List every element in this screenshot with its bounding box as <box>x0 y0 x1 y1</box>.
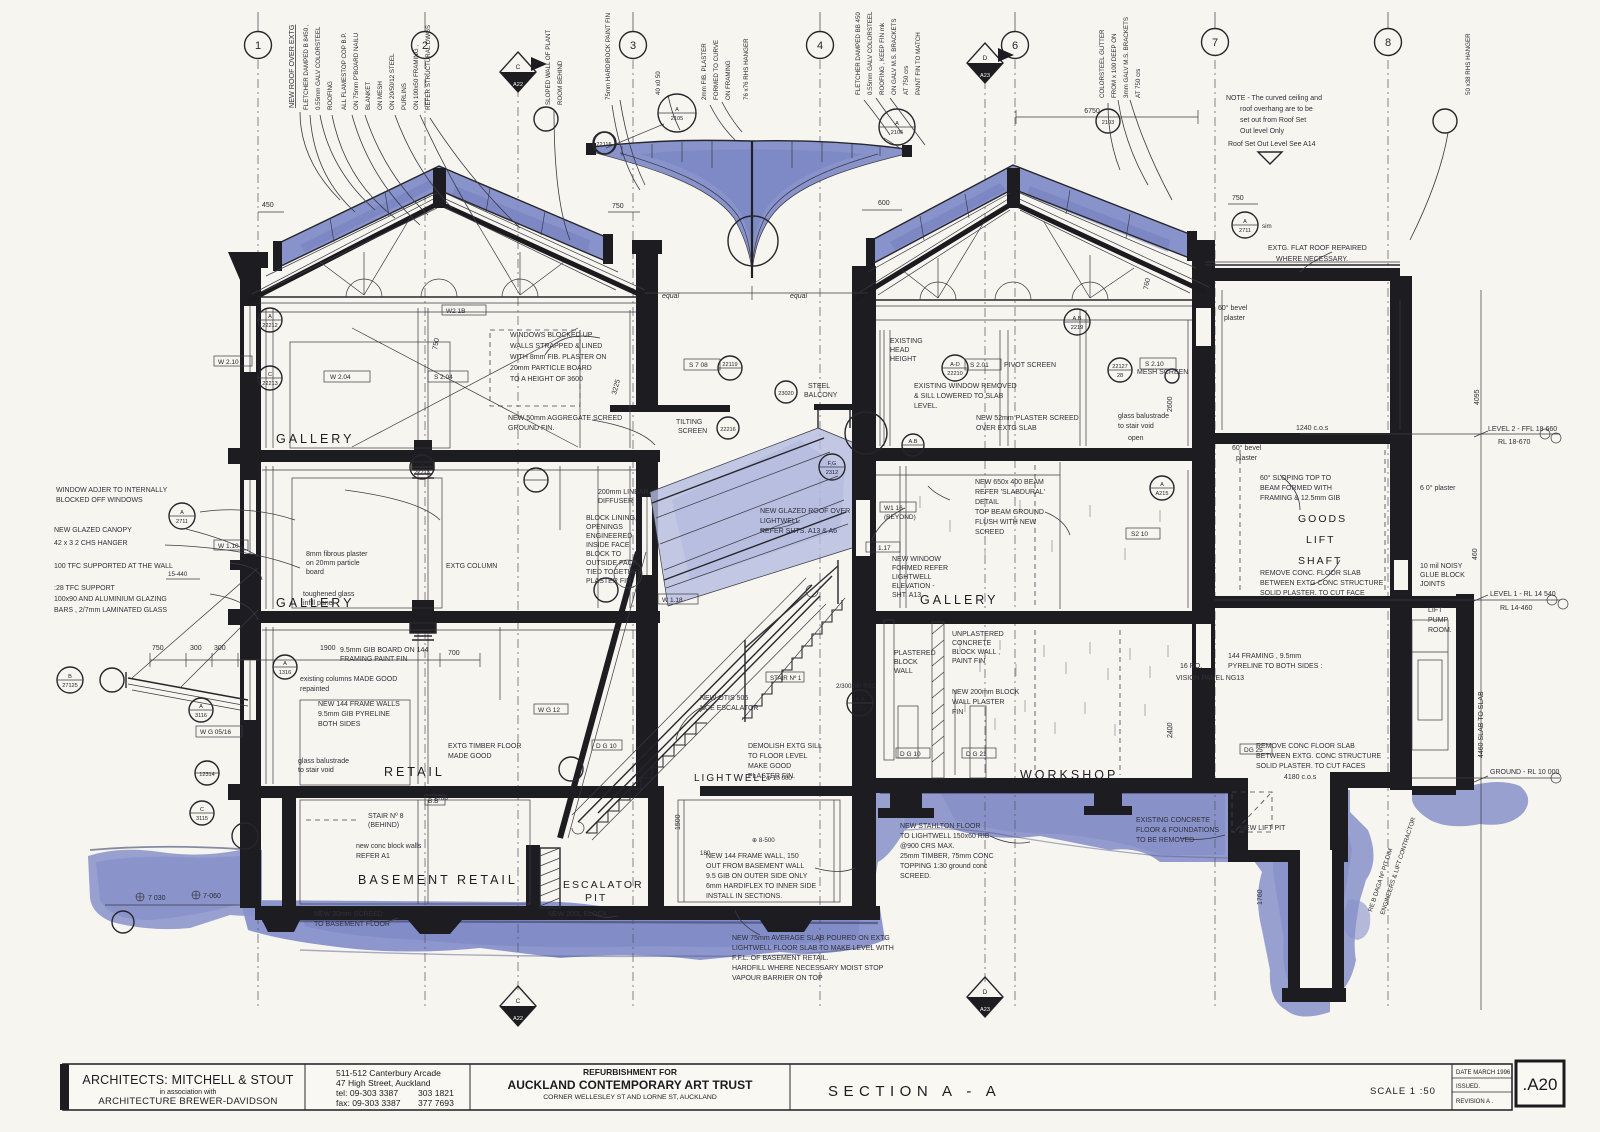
svg-text:INSIDE FACE: INSIDE FACE <box>586 542 630 549</box>
svg-text:ALL FLAMESTOP COP B.P.: ALL FLAMESTOP COP B.P. <box>341 32 348 110</box>
svg-text:WALL PLASTER: WALL PLASTER <box>952 699 1004 706</box>
svg-text:A: A <box>895 121 899 127</box>
svg-text:REFER STRUCTURAL DWGS: REFER STRUCTURAL DWGS <box>425 25 432 110</box>
svg-text:SECTION A - A: SECTION A - A <box>828 1083 1001 1100</box>
svg-text:3mm GALV M.S. BRACKETS: 3mm GALV M.S. BRACKETS <box>1123 17 1130 98</box>
svg-text:60° bevel: 60° bevel <box>1232 444 1262 452</box>
svg-text:W G 12: W G 12 <box>538 707 560 714</box>
svg-text:FLUSH WITH NEW: FLUSH WITH NEW <box>975 519 1036 526</box>
svg-text:22210: 22210 <box>947 371 963 377</box>
svg-text:1: 1 <box>255 40 261 52</box>
svg-text:1500: 1500 <box>675 814 682 830</box>
svg-text:7-060: 7-060 <box>203 893 221 900</box>
svg-text:LEVEL 1 - RL 14 540: LEVEL 1 - RL 14 540 <box>1490 591 1556 598</box>
svg-text:SCREED: SCREED <box>975 529 1004 536</box>
svg-text:STAIR Nº 1: STAIR Nº 1 <box>770 675 802 682</box>
svg-text:REVISION A .: REVISION A . <box>1456 1099 1493 1105</box>
svg-text:22216: 22216 <box>720 427 736 433</box>
svg-text:PLASTERED: PLASTERED <box>894 650 936 657</box>
svg-text:TOP BEAM GROUND: TOP BEAM GROUND <box>975 509 1044 516</box>
svg-text:22213: 22213 <box>414 470 430 476</box>
svg-text:S 2.10: S 2.10 <box>1145 361 1164 368</box>
svg-text:board: board <box>306 569 324 576</box>
svg-text:FLOOR & FOUNDATIONS: FLOOR & FOUNDATIONS <box>1136 827 1219 834</box>
svg-text:SCALE 1 :50: SCALE 1 :50 <box>1370 1086 1436 1097</box>
svg-text:A23: A23 <box>980 73 990 79</box>
svg-text:S 2.01: S 2.01 <box>970 362 989 369</box>
svg-text:equal: equal <box>662 293 680 300</box>
svg-text:1316: 1316 <box>279 670 291 676</box>
svg-text:on 20mm particle: on 20mm particle <box>306 560 360 567</box>
svg-text:W G 05/16: W G 05/16 <box>200 729 231 736</box>
svg-text:SLOPED WALL OF PLANT: SLOPED WALL OF PLANT <box>545 30 552 105</box>
svg-text:D G 21: D G 21 <box>966 751 987 758</box>
svg-text:8mm fibrous plaster: 8mm fibrous plaster <box>306 551 368 558</box>
svg-text:200mm LINEAR: 200mm LINEAR <box>598 489 649 496</box>
svg-text:S2 10: S2 10 <box>1131 531 1148 538</box>
svg-text:FROM x 100 DEEP ON: FROM x 100 DEEP ON <box>1111 33 1118 98</box>
svg-text:450: 450 <box>262 202 274 209</box>
svg-text:roof overhang are to be: roof overhang are to be <box>1240 106 1313 113</box>
svg-text:TOPPING 1:30 ground conc: TOPPING 1:30 ground conc <box>900 863 988 870</box>
svg-text:ROOM.: ROOM. <box>1428 627 1452 634</box>
svg-text:RETAIL: RETAIL <box>384 765 445 779</box>
svg-text:A23: A23 <box>980 1007 990 1013</box>
svg-text:W 1.17: W 1.17 <box>870 545 891 552</box>
svg-text:glass balustrade: glass balustrade <box>298 758 349 765</box>
svg-text:W 1.10: W 1.10 <box>218 543 239 550</box>
svg-text:RL 14-460: RL 14-460 <box>1500 605 1533 612</box>
svg-text:D G 10: D G 10 <box>596 743 617 750</box>
svg-text:SOLID PLASTER. TO CUT FACES: SOLID PLASTER. TO CUT FACES <box>1256 763 1366 770</box>
svg-text:12314: 12314 <box>199 772 215 778</box>
svg-text:MESH SCREEN: MESH SCREEN <box>1137 369 1188 376</box>
svg-text:AUCKLAND CONTEMPORARY ART TRUS: AUCKLAND CONTEMPORARY ART TRUST <box>508 1078 754 1092</box>
svg-text:& SILL LOWERED TO SLAB: & SILL LOWERED TO SLAB <box>914 393 1004 400</box>
svg-text:1760: 1760 <box>1257 889 1264 905</box>
svg-text:OVER EXTG SLAB: OVER EXTG SLAB <box>976 425 1037 432</box>
svg-text:BLOCK TO: BLOCK TO <box>586 551 622 558</box>
svg-text:TIED TOGETHER: TIED TOGETHER <box>586 569 643 576</box>
svg-text:EXTG TIMBER FLOOR: EXTG TIMBER FLOOR <box>448 743 521 750</box>
svg-text:C: C <box>420 461 424 467</box>
svg-text:6 0° plaster: 6 0° plaster <box>1420 484 1456 492</box>
svg-text:plaster: plaster <box>1236 455 1258 462</box>
svg-text:A22: A22 <box>513 82 523 88</box>
svg-text:2106: 2106 <box>891 130 903 136</box>
svg-text:A: A <box>1243 219 1247 225</box>
svg-text:NCE ESCALATOR: NCE ESCALATOR <box>700 705 758 712</box>
svg-text:2786: 2786 <box>434 795 448 802</box>
svg-text:600: 600 <box>878 200 890 207</box>
svg-text:47 High Street, Auckland: 47 High Street, Auckland <box>336 1078 431 1088</box>
svg-text:6mm HARDIFLEX TO INNER SIDE: 6mm HARDIFLEX TO INNER SIDE <box>706 883 817 890</box>
svg-text:WHERE NECESSARY.: WHERE NECESSARY. <box>1276 256 1348 263</box>
svg-text:FIN: FIN <box>952 709 963 716</box>
svg-text:2209: 2209 <box>907 448 919 454</box>
svg-text:LIFT: LIFT <box>1428 607 1443 614</box>
svg-text:EXISTING: EXISTING <box>890 338 923 345</box>
svg-text:511-512 Canterbury Arcade: 511-512 Canterbury Arcade <box>336 1068 441 1078</box>
svg-text:F,G: F,G <box>828 461 837 467</box>
svg-text:ROOM BEHIND: ROOM BEHIND <box>557 60 564 105</box>
svg-text:NEW WINDOW: NEW WINDOW <box>892 556 941 563</box>
svg-text:144 FRAMING , 9.5mm: 144 FRAMING , 9.5mm <box>1228 653 1301 660</box>
svg-text:40 x0 50: 40 x0 50 <box>655 71 662 95</box>
svg-text:7 030: 7 030 <box>148 895 166 902</box>
svg-text:D: D <box>983 55 988 62</box>
svg-text:NEW 50mm AGGREGATE SCREED: NEW 50mm AGGREGATE SCREED <box>508 415 622 422</box>
svg-text:75mm HARDIROCK PAINT FIN: 75mm HARDIROCK PAINT FIN <box>605 13 612 100</box>
svg-text:20mm PARTICLE BOARD: 20mm PARTICLE BOARD <box>510 365 592 372</box>
svg-text:2/300x90 RSC: 2/300x90 RSC <box>836 683 877 690</box>
svg-text:A: A <box>675 107 679 113</box>
svg-text:SHAFT: SHAFT <box>1298 555 1342 567</box>
svg-text:PAINT FIN TO MATCH: PAINT FIN TO MATCH <box>915 32 922 95</box>
svg-text:700: 700 <box>448 650 460 657</box>
svg-text:ON GALV M.S. BRACKETS: ON GALV M.S. BRACKETS <box>891 18 898 95</box>
svg-text:AT 750 crs: AT 750 crs <box>903 66 910 95</box>
svg-text:2711: 2711 <box>176 519 188 525</box>
svg-text:ISSUED.: ISSUED. <box>1456 1084 1480 1090</box>
svg-text:ON MESH: ON MESH <box>377 81 384 110</box>
svg-text:WITH 8mm FIB. PLASTER ON: WITH 8mm FIB. PLASTER ON <box>510 354 606 361</box>
svg-text:2711: 2711 <box>1239 228 1251 234</box>
svg-text:LEVEL.: LEVEL. <box>914 403 938 410</box>
svg-text:REMOVE CONC. FLOOR SLAB: REMOVE CONC. FLOOR SLAB <box>1260 570 1361 577</box>
svg-text:50 x38 RHS HANGER: 50 x38 RHS HANGER <box>1465 33 1472 95</box>
svg-text:TO FLOOR LEVEL: TO FLOOR LEVEL <box>748 753 807 760</box>
svg-text:infill panel: infill panel <box>303 600 335 607</box>
svg-text:ROOFING , KEEP FIN mk: ROOFING , KEEP FIN mk <box>879 22 886 95</box>
svg-text:REMOVE CONC FLOOR SLAB: REMOVE CONC FLOOR SLAB <box>1256 743 1355 750</box>
svg-text:A: A <box>268 314 272 320</box>
svg-text:@900 CRS MAX.: @900 CRS MAX. <box>900 843 955 850</box>
svg-text:0.55mm GALV COLORSTEEL: 0.55mm GALV COLORSTEEL <box>315 26 322 110</box>
svg-text:TO BASEMENT FLOOR: TO BASEMENT FLOOR <box>314 921 390 928</box>
svg-text:4095: 4095 <box>1474 389 1481 405</box>
svg-text:NEW 200L BLOCK: NEW 200L BLOCK <box>548 911 608 918</box>
svg-text:FLETCHER DAMPED B 8450 ,: FLETCHER DAMPED B 8450 , <box>303 24 310 110</box>
svg-text:2219: 2219 <box>1071 325 1083 331</box>
svg-text:C: C <box>516 998 521 1005</box>
svg-text:NEW 144 FRAME WALLS: NEW 144 FRAME WALLS <box>318 701 400 708</box>
svg-text:PIVOT SCREEN: PIVOT SCREEN <box>1004 362 1056 369</box>
svg-text:6: 6 <box>1012 40 1018 52</box>
svg-text:SCREED.: SCREED. <box>900 873 931 880</box>
svg-text:BETWEEN EXTG. CONC STRUCTURE: BETWEEN EXTG. CONC STRUCTURE <box>1256 753 1382 760</box>
svg-text:⊕ 8-500: ⊕ 8-500 <box>752 837 775 844</box>
svg-text:BLANKET: BLANKET <box>365 82 372 110</box>
svg-text:GALLERY: GALLERY <box>920 593 998 607</box>
svg-text:LIFT: LIFT <box>1306 534 1336 546</box>
svg-text:A.B: A.B <box>1072 316 1081 322</box>
svg-text:NEW GLAZED CANOPY: NEW GLAZED CANOPY <box>54 527 132 534</box>
svg-text:S 7 08: S 7 08 <box>689 362 708 369</box>
svg-text:OUT FROM BASEMENT WALL: OUT FROM BASEMENT WALL <box>706 863 804 870</box>
svg-text:2mm FIB. PLASTER: 2mm FIB. PLASTER <box>701 43 708 100</box>
svg-text:UNPLASTERED: UNPLASTERED <box>952 631 1004 638</box>
svg-text:Roof Set Out Level See A14: Roof Set Out Level See A14 <box>1228 141 1316 148</box>
svg-text:76 x76 RHS HANGER: 76 x76 RHS HANGER <box>743 38 750 100</box>
svg-text:AT 750 crs: AT 750 crs <box>1135 69 1142 98</box>
svg-text:HARDFILL WHERE NECESSARY MO: HARDFILL WHERE NECESSARY MOIST STOP <box>732 965 884 972</box>
svg-text:C: C <box>268 372 272 378</box>
svg-text:303 1821: 303 1821 <box>418 1088 454 1098</box>
svg-text:A: A <box>283 661 287 667</box>
svg-text:NEW LIFT PIT: NEW LIFT PIT <box>1240 825 1286 832</box>
svg-text:ESCALATOR: ESCALATOR <box>563 879 644 891</box>
svg-text:750: 750 <box>1232 195 1244 202</box>
svg-text:NEW 30mm SCREED: NEW 30mm SCREED <box>314 911 383 918</box>
svg-text:ON 75mm P'BOARD NAILU: ON 75mm P'BOARD NAILU <box>353 33 360 110</box>
svg-text:PUMP: PUMP <box>1428 617 1449 624</box>
svg-text:WALLS STRAPPED & LINED: WALLS STRAPPED & LINED <box>510 343 602 350</box>
svg-text:28: 28 <box>1117 373 1123 379</box>
svg-text:3: 3 <box>630 40 636 52</box>
svg-text:HEIGHT: HEIGHT <box>890 356 917 363</box>
svg-text:22127: 22127 <box>1112 364 1128 370</box>
svg-text:REFER SHTS. A13 & A6: REFER SHTS. A13 & A6 <box>760 528 837 535</box>
svg-text:42 x 3 2 CHS HANGER: 42 x 3 2 CHS HANGER <box>54 540 128 547</box>
svg-text:GOODS: GOODS <box>1298 513 1347 525</box>
svg-text:A: A <box>1160 482 1164 488</box>
svg-text:repainted: repainted <box>300 686 329 693</box>
svg-text:FORMED TO CURVE: FORMED TO CURVE <box>713 40 720 100</box>
svg-text:DATE MARCH 1996: DATE MARCH 1996 <box>1456 1070 1511 1076</box>
svg-text:ARCHITECTS: MITCHELL & STOUT: ARCHITECTS: MITCHELL & STOUT <box>82 1073 293 1087</box>
svg-text:glass balustrade: glass balustrade <box>1118 413 1169 420</box>
svg-text:JOINTS: JOINTS <box>1420 581 1445 588</box>
svg-text:2312: 2312 <box>826 470 838 476</box>
svg-text:REFER 'SLABDURAL': REFER 'SLABDURAL' <box>975 489 1045 496</box>
svg-text:377 7693: 377 7693 <box>418 1098 454 1108</box>
svg-text:.A20: .A20 <box>1523 1075 1558 1094</box>
svg-text:8: 8 <box>1385 37 1391 49</box>
svg-text:sim: sim <box>1262 223 1272 230</box>
svg-text:1240 c.o.s: 1240 c.o.s <box>1296 425 1329 432</box>
svg-text:NEW ROOF OVER EXTG: NEW ROOF OVER EXTG <box>287 24 296 108</box>
svg-text:EXISTING WINDOW REMOVED: EXISTING WINDOW REMOVED <box>914 383 1017 390</box>
svg-text:ROOFING: ROOFING <box>327 81 334 110</box>
svg-text:BARS , 2/7mm LAMINATED GLASS: BARS , 2/7mm LAMINATED GLASS <box>54 607 167 614</box>
svg-text:A: A <box>180 510 184 516</box>
svg-text:9.5mm GIB PYRELINE: 9.5mm GIB PYRELINE <box>318 711 390 718</box>
svg-text:STEEL: STEEL <box>808 383 830 390</box>
svg-text:NEW STAHLTON FLOOR: NEW STAHLTON FLOOR <box>900 823 981 830</box>
svg-text:TO LIGHTWELL 150x60 RIB: TO LIGHTWELL 150x60 RIB <box>900 833 990 840</box>
svg-text:NEW GLAZED ROOF OVER: NEW GLAZED ROOF OVER <box>760 508 850 515</box>
svg-text:BOTH SIDES: BOTH SIDES <box>318 721 361 728</box>
svg-text:10 mil NOISY: 10 mil NOISY <box>1420 563 1463 570</box>
svg-text:WALL: WALL <box>894 668 913 675</box>
svg-text:22213: 22213 <box>262 381 278 387</box>
svg-text:22119: 22119 <box>722 362 737 368</box>
svg-text:TILTING: TILTING <box>676 419 702 426</box>
svg-text:VAPOUR BARRIER ON TOP: VAPOUR BARRIER ON TOP <box>732 975 823 982</box>
svg-text:BLOCK LINING,: BLOCK LINING, <box>586 515 637 522</box>
svg-text:BALCONY: BALCONY <box>804 392 838 399</box>
svg-text:W 2.04: W 2.04 <box>330 374 351 381</box>
svg-text:A215: A215 <box>1155 491 1168 497</box>
svg-text:new conc block walls: new conc block walls <box>356 843 422 850</box>
svg-text:EXISTING CONCRETE: EXISTING CONCRETE <box>1136 817 1210 824</box>
svg-text:PYRELINE TO BOTH SIDES :: PYRELINE TO BOTH SIDES : <box>1228 663 1322 670</box>
svg-text:FLETCHER DAMPED BB 450: FLETCHER DAMPED BB 450 <box>855 12 862 95</box>
svg-text:existing columns MADE GOOD: existing columns MADE GOOD <box>300 676 397 683</box>
svg-text:BLOCK: BLOCK <box>894 659 918 666</box>
svg-text:SOLID PLASTER. TO CUT FACE: SOLID PLASTER. TO CUT FACE <box>1260 590 1365 597</box>
svg-text:CORNER WELLESLEY ST AND LORNE: CORNER WELLESLEY ST AND LORNE ST, AUCKLA… <box>543 1094 717 1101</box>
svg-text:WINDOWS BLOCKED UP: WINDOWS BLOCKED UP <box>510 332 593 339</box>
svg-text:tel: 09-303 3387: tel: 09-303 3387 <box>336 1088 398 1098</box>
svg-text:RL 18-670: RL 18-670 <box>1498 439 1531 446</box>
svg-text:27125: 27125 <box>62 683 78 689</box>
svg-text:COLORSTEEL GUTTER: COLORSTEEL GUTTER <box>1099 29 1106 98</box>
svg-text:PURLINS: PURLINS <box>401 83 408 110</box>
svg-text:toughened glass: toughened glass <box>303 591 355 598</box>
svg-text:BETWEEN EXTG CONC STRUCTURE: BETWEEN EXTG CONC STRUCTURE <box>1260 580 1384 587</box>
svg-text:STAIR Nº 8: STAIR Nº 8 <box>368 813 404 820</box>
svg-text:2105: 2105 <box>671 116 683 122</box>
svg-text:NEW 144 FRAME WALL, 150: NEW 144 FRAME WALL, 150 <box>706 853 799 860</box>
svg-text:16 RO.: 16 RO. <box>1180 663 1202 670</box>
svg-text:ENGINEERED: ENGINEERED <box>586 533 632 540</box>
svg-text:A-D: A-D <box>950 362 960 368</box>
svg-text:LIGHTWELL: LIGHTWELL <box>760 518 800 525</box>
svg-text:D: D <box>983 989 988 996</box>
svg-text:in association with: in association with <box>160 1089 217 1096</box>
svg-text:EXTG COLUMN: EXTG COLUMN <box>446 563 497 570</box>
svg-text:100x90 AND ALUMINIUM GLAZING: 100x90 AND ALUMINIUM GLAZING <box>54 596 167 603</box>
svg-text:MAKE GOOD: MAKE GOOD <box>748 763 791 770</box>
svg-text:FORMED REFER: FORMED REFER <box>892 565 948 572</box>
svg-text:DIFFUSER: DIFFUSER <box>598 498 633 505</box>
svg-text:GROUND FIN.: GROUND FIN. <box>508 425 554 432</box>
svg-text:ELEVATION -: ELEVATION - <box>892 583 935 590</box>
svg-text:W2 1B: W2 1B <box>446 308 466 315</box>
svg-text:4180 c.o.s: 4180 c.o.s <box>1284 774 1317 781</box>
svg-text:MADE GOOD: MADE GOOD <box>448 753 492 760</box>
svg-text:300: 300 <box>190 645 202 652</box>
svg-text:(BEYOND): (BEYOND) <box>884 514 916 521</box>
svg-text:15-440: 15-440 <box>168 571 188 578</box>
svg-text:LIGHTWELL FLOOR SLAB TO MAK: LIGHTWELL FLOOR SLAB TO MAKE LEVEL WITH <box>732 945 894 952</box>
svg-text:NEW OTIS 506: NEW OTIS 506 <box>700 695 748 702</box>
svg-text:SCREEN: SCREEN <box>678 428 707 435</box>
svg-text:ON 100x50 FRAMING ,: ON 100x50 FRAMING , <box>413 45 420 110</box>
svg-text:9.5 GIB ON OUTER SIDE ONLY: 9.5 GIB ON OUTER SIDE ONLY <box>706 873 808 880</box>
svg-text:NEW 52mm PLASTER SCREED: NEW 52mm PLASTER SCREED <box>976 415 1079 422</box>
svg-text:GLUE BLOCK: GLUE BLOCK <box>1420 572 1465 579</box>
svg-text:REFURBISHMENT FOR: REFURBISHMENT FOR <box>583 1067 677 1077</box>
svg-text:23020: 23020 <box>778 391 794 397</box>
svg-text:WORKSHOP: WORKSHOP <box>1020 768 1118 782</box>
svg-text:3225: 3225 <box>611 379 622 396</box>
svg-text:25mm TIMBER, 75mm CONC: 25mm TIMBER, 75mm CONC <box>900 853 994 860</box>
svg-text:760: 760 <box>1143 278 1152 291</box>
svg-text:60° bevel: 60° bevel <box>1218 304 1248 312</box>
svg-text:PLASTER FIN.: PLASTER FIN. <box>748 773 795 780</box>
svg-text:INSTALL IN SECTIONS.: INSTALL IN SECTIONS. <box>706 893 782 900</box>
svg-text:NEW 200mm BLOCK: NEW 200mm BLOCK <box>952 689 1020 696</box>
svg-text:1900: 1900 <box>320 645 336 652</box>
svg-text:C: C <box>200 807 204 813</box>
svg-text:FRAMING & 12.5mm GIB: FRAMING & 12.5mm GIB <box>1260 495 1340 502</box>
svg-text:ON FRAMING: ON FRAMING <box>725 60 732 100</box>
svg-text:3115: 3115 <box>196 816 208 822</box>
svg-text:0.55mm GALV COLORSTEEL: 0.55mm GALV COLORSTEEL <box>867 11 874 95</box>
svg-text:WINDOW ADJER TO INTERNALLY: WINDOW ADJER TO INTERNALLY <box>56 487 168 494</box>
svg-text:W 1.18: W 1.18 <box>662 597 683 604</box>
svg-text:2312: 2312 <box>854 706 866 712</box>
svg-text:A22: A22 <box>513 1016 523 1022</box>
svg-text:REFER A1: REFER A1 <box>356 853 390 860</box>
svg-text:NOTE - The curved ceiling an: NOTE - The curved ceiling and <box>1226 95 1322 102</box>
svg-text:NEW 650x 400 BEAM: NEW 650x 400 BEAM <box>975 479 1044 486</box>
svg-text:22212: 22212 <box>262 323 278 329</box>
svg-text:2400: 2400 <box>1167 722 1174 738</box>
svg-text:300: 300 <box>214 645 226 652</box>
svg-text:open: open <box>1128 435 1144 442</box>
svg-text:3116: 3116 <box>195 713 207 719</box>
svg-text:SHT. A13.: SHT. A13. <box>892 592 923 599</box>
svg-text:LIGHTWELL: LIGHTWELL <box>892 574 932 581</box>
svg-text:F.F.L. OF BASEMENT RETAIL.: F.F.L. OF BASEMENT RETAIL. <box>732 955 829 962</box>
svg-text:TO BE REMOVED: TO BE REMOVED <box>1136 837 1194 844</box>
svg-text:GALLERY: GALLERY <box>276 432 354 446</box>
svg-text:60° SLOPING TOP TO: 60° SLOPING TOP TO <box>1260 474 1332 482</box>
svg-text:460: 460 <box>1472 548 1479 560</box>
svg-text:S 2.04: S 2.04 <box>434 374 453 381</box>
svg-text:(BEHIND): (BEHIND) <box>368 822 399 829</box>
svg-text:750: 750 <box>152 645 164 652</box>
svg-text:BASEMENT RETAIL: BASEMENT RETAIL <box>358 873 518 887</box>
svg-text:2103: 2103 <box>1102 120 1114 126</box>
svg-text:GROUND - RL 10 000: GROUND - RL 10 000 <box>1490 769 1559 776</box>
svg-text:HEAD: HEAD <box>890 347 909 354</box>
svg-text:4460 SLAB TO SLAB: 4460 SLAB TO SLAB <box>1478 691 1485 758</box>
svg-text:4: 4 <box>817 40 823 52</box>
svg-text:NEW 75mm AVERAGE SLAB POUR: NEW 75mm AVERAGE SLAB POURED ON EXTG <box>732 935 890 942</box>
svg-text:TO A HEIGHT OF 3600: TO A HEIGHT OF 3600 <box>510 376 583 383</box>
svg-text:to stair void: to stair void <box>1118 423 1154 430</box>
svg-text:Out level Only: Out level Only <box>1240 128 1284 135</box>
svg-text:DEMOLISH EXTG SILL: DEMOLISH EXTG SILL <box>748 743 822 750</box>
svg-text:100 TFC SUPPORTED AT THE W: 100 TFC SUPPORTED AT THE WALL <box>54 563 173 570</box>
svg-text:equal: equal <box>790 293 808 300</box>
svg-text:PIT: PIT <box>585 892 607 904</box>
svg-text:DETAIL: DETAIL <box>975 499 999 506</box>
svg-text:A.B: A.B <box>908 439 917 445</box>
svg-text:OPENINGS: OPENINGS <box>586 524 623 531</box>
svg-text:CONCRETE: CONCRETE <box>952 640 992 647</box>
svg-text:PLASTER FIN: PLASTER FIN <box>586 578 631 585</box>
svg-text:2600: 2600 <box>1167 396 1174 412</box>
svg-text:OUTSIDE FACE: OUTSIDE FACE <box>586 560 638 567</box>
svg-text::28 TFC SUPPORT: :28 TFC SUPPORT <box>54 585 116 592</box>
svg-text:fax: 09-303 3387: fax: 09-303 3387 <box>336 1098 401 1108</box>
svg-text:ARCHITECTURE BREWER-DAVIDSON: ARCHITECTURE BREWER-DAVIDSON <box>98 1096 277 1107</box>
svg-text:VISION PANEL NG13: VISION PANEL NG13 <box>1176 675 1244 682</box>
svg-text:750: 750 <box>432 338 441 351</box>
svg-text:750: 750 <box>612 203 624 210</box>
svg-text:PAINT FIN: PAINT FIN <box>952 658 985 665</box>
svg-text:7: 7 <box>1212 37 1218 49</box>
svg-text:to stair void: to stair void <box>298 767 334 774</box>
svg-text:C: C <box>516 64 521 71</box>
svg-text:A.B: A.B <box>855 697 864 703</box>
